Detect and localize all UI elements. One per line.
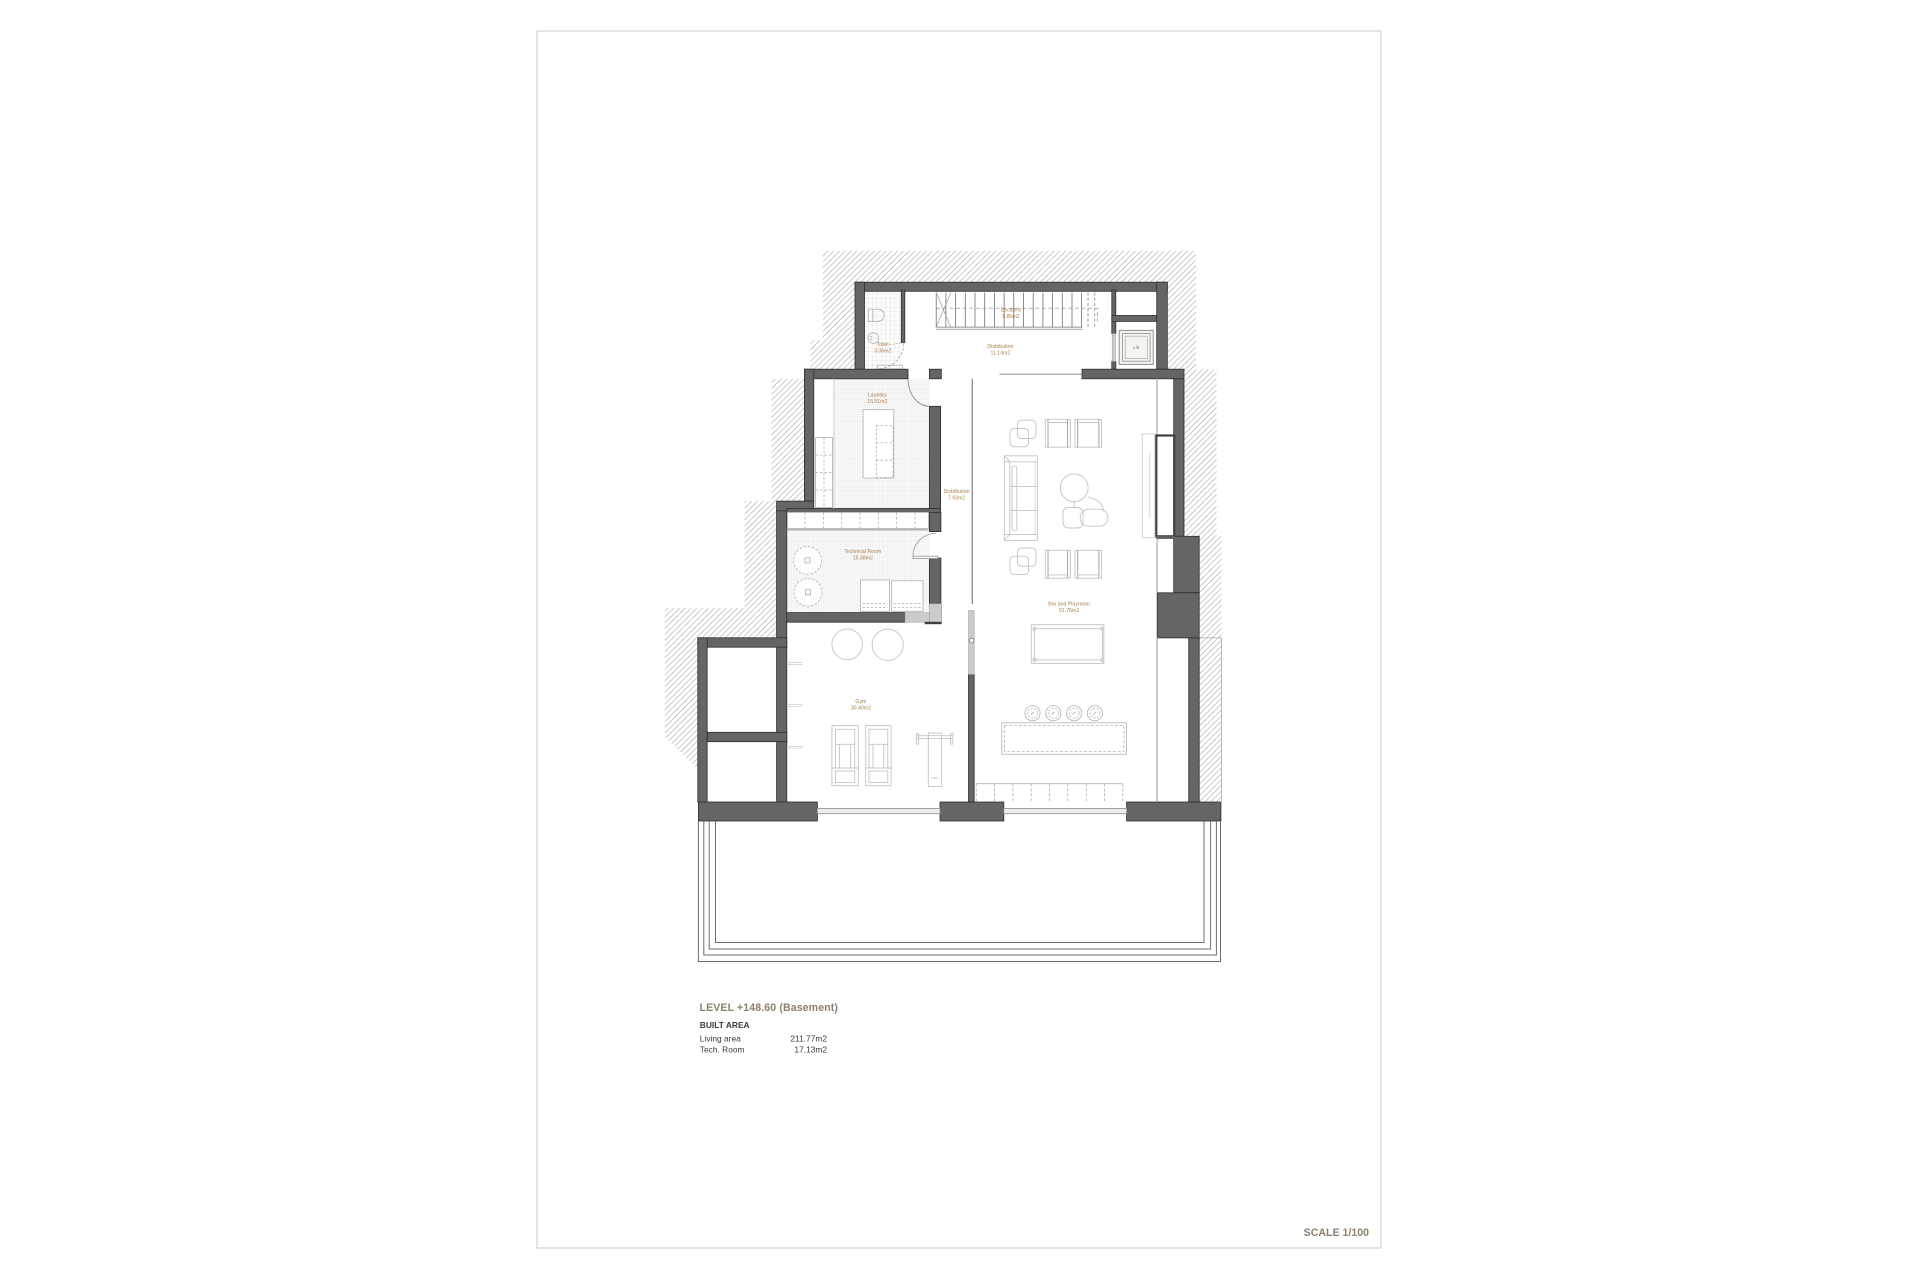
svg-text:Gym: Gym [855,699,866,705]
svg-text:SCALE 1/100: SCALE 1/100 [1304,1227,1369,1239]
svg-text:91.75m2: 91.75m2 [1059,608,1079,614]
svg-text:30.40m2: 30.40m2 [851,705,871,711]
svg-text:15.38m2: 15.38m2 [853,555,873,561]
svg-text:Bar and Playroom: Bar and Playroom [1048,601,1090,607]
svg-text:Escalera: Escalera [1001,308,1021,314]
svg-text:Distribution: Distribution [944,489,970,495]
svg-text:Distribution: Distribution [987,344,1013,350]
svg-text:3.06m2: 3.06m2 [874,349,891,355]
svg-text:15.51m2: 15.51m2 [867,399,887,405]
svg-text:LEVEL +148.60 (Basement): LEVEL +148.60 (Basement) [700,1002,839,1014]
svg-text:211.77m2: 211.77m2 [790,1033,827,1043]
svg-text:Tech. Room: Tech. Room [700,1044,745,1054]
svg-text:BUILT AREA: BUILT AREA [700,1020,750,1030]
svg-text:11.14m2: 11.14m2 [990,350,1010,356]
svg-text:17.13m2: 17.13m2 [794,1044,827,1054]
svg-text:7.93m2: 7.93m2 [948,496,965,502]
svg-text:Laundry: Laundry [868,393,887,399]
svg-text:5.80m2: 5.80m2 [1002,314,1019,320]
svg-text:Living area: Living area [700,1033,741,1043]
svg-text:Lift: Lift [1133,345,1140,351]
svg-text:Toilet: Toilet [877,342,890,348]
svg-text:Technical Room: Technical Room [844,549,881,555]
